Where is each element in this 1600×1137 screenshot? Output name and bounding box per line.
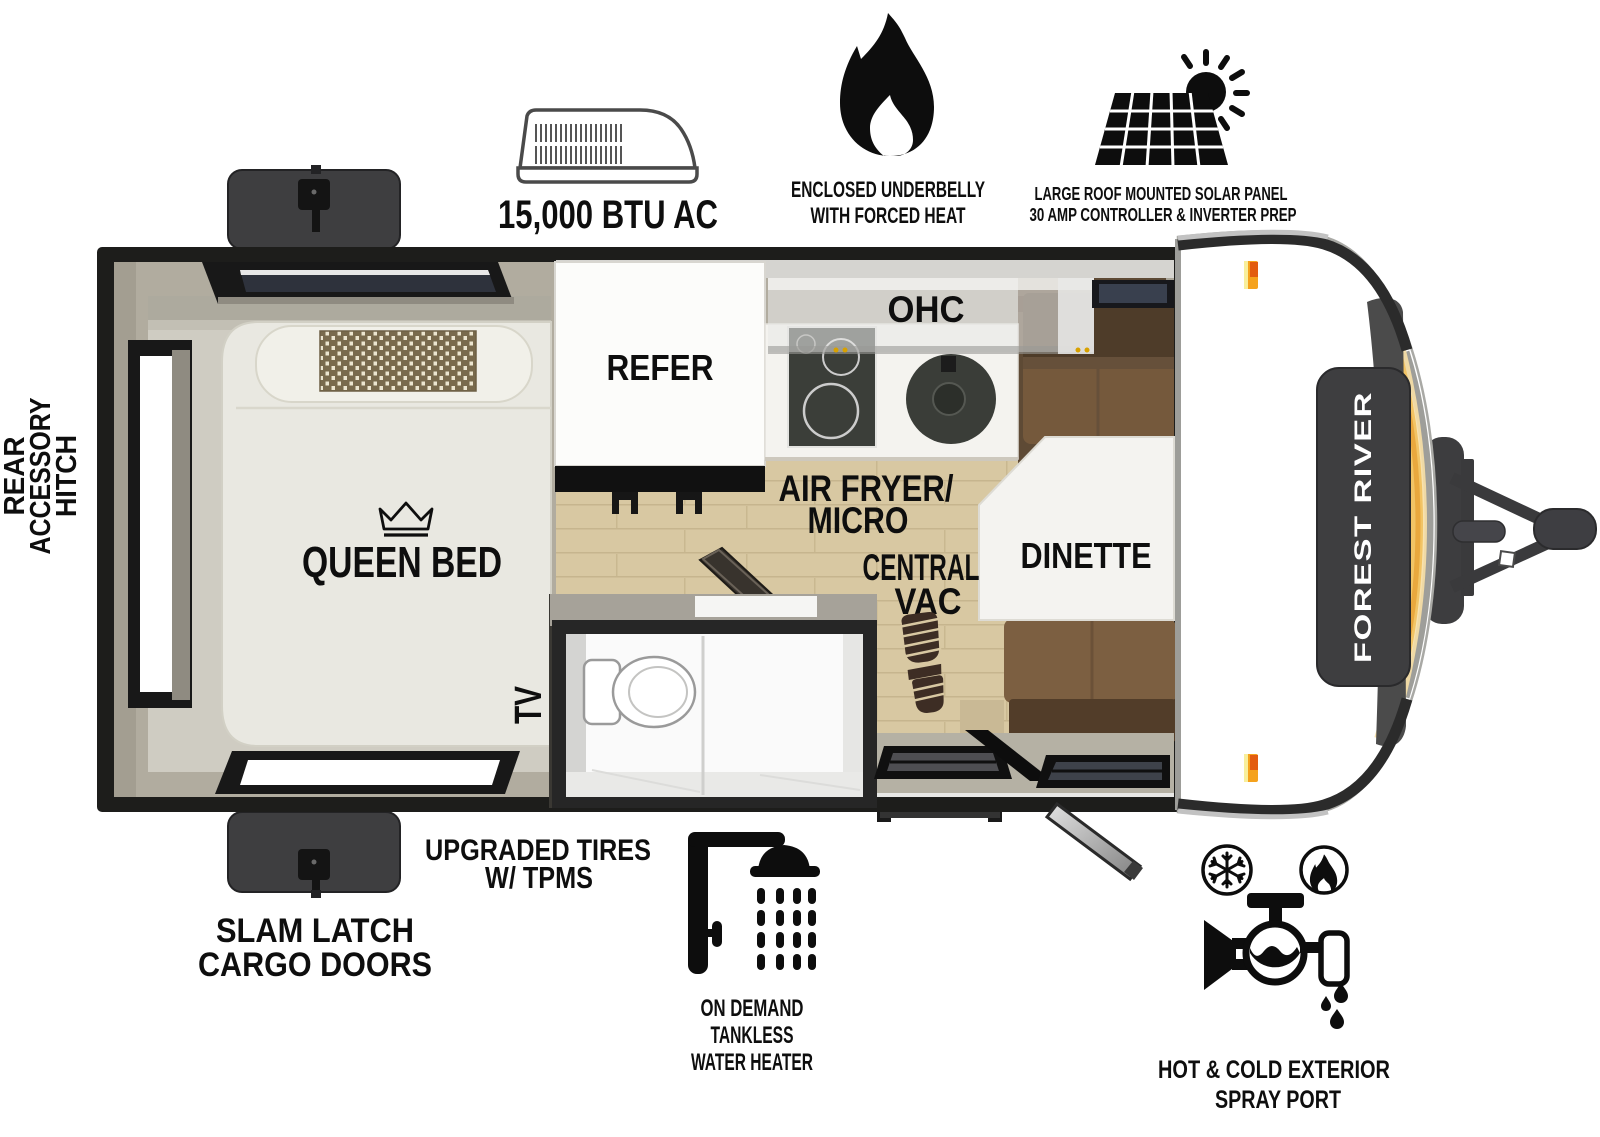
svg-text:ON DEMAND: ON DEMAND <box>701 995 804 1022</box>
svg-text:CARGO DOORS: CARGO DOORS <box>198 946 432 984</box>
svg-text:WATER HEATER: WATER HEATER <box>691 1049 813 1076</box>
svg-text:TV: TV <box>508 685 550 724</box>
svg-text:OHC: OHC <box>888 289 965 330</box>
svg-text:FOREST RIVER: FOREST RIVER <box>1350 391 1377 663</box>
svg-text:SPRAY PORT: SPRAY PORT <box>1215 1086 1341 1114</box>
svg-text:SLAM LATCH: SLAM LATCH <box>216 912 414 950</box>
svg-text:HOT & COLD EXTERIOR: HOT & COLD EXTERIOR <box>1158 1056 1390 1084</box>
svg-text:30 AMP CONTROLLER & INVERTER P: 30 AMP CONTROLLER & INVERTER PREP <box>1030 205 1297 225</box>
svg-text:WITH FORCED HEAT: WITH FORCED HEAT <box>811 203 966 228</box>
svg-text:MICRO: MICRO <box>808 500 909 541</box>
svg-text:W/ TPMS: W/ TPMS <box>485 860 593 895</box>
svg-text:DINETTE: DINETTE <box>1021 535 1152 576</box>
svg-text:ENCLOSED UNDERBELLY: ENCLOSED UNDERBELLY <box>791 177 985 202</box>
svg-text:HITCH: HITCH <box>51 435 83 517</box>
svg-text:15,000 BTU AC: 15,000 BTU AC <box>498 193 718 237</box>
svg-text:QUEEN BED: QUEEN BED <box>302 538 502 587</box>
svg-text:TANKLESS: TANKLESS <box>711 1022 794 1049</box>
svg-text:REFER: REFER <box>607 347 714 388</box>
svg-text:LARGE ROOF MOUNTED SOLAR PANEL: LARGE ROOF MOUNTED SOLAR PANEL <box>1035 184 1288 204</box>
